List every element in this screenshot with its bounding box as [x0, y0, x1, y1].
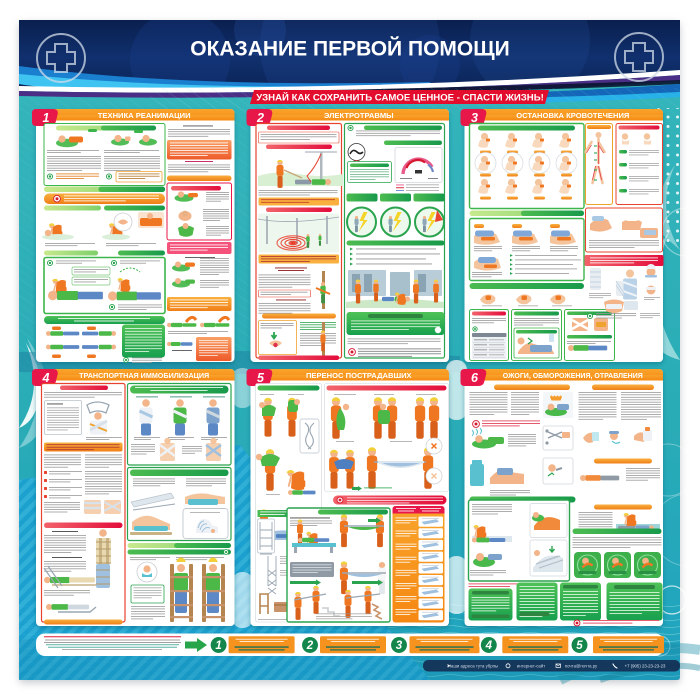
svg-text:ТЕХНИКА РЕАНИМАЦИИ: ТЕХНИКА РЕАНИМАЦИИ	[98, 111, 191, 120]
svg-text:ОЖОГИ, ОБМОРОЖЕНИЯ, ОТРАВЛЕНИЯ: ОЖОГИ, ОБМОРОЖЕНИЯ, ОТРАВЛЕНИЯ	[503, 373, 643, 380]
svg-text:6: 6	[471, 371, 479, 385]
svg-text:+7 (905) 23-23-23-23: +7 (905) 23-23-23-23	[625, 664, 666, 669]
svg-text:4: 4	[485, 640, 493, 652]
svg-text:2: 2	[306, 640, 314, 652]
svg-text:интернет-сайт: интернет-сайт	[517, 664, 545, 669]
svg-text:5: 5	[257, 371, 265, 385]
svg-text:1: 1	[215, 640, 221, 652]
svg-text:Наши адреса тута убрпы: Наши адреса тута убрпы	[448, 664, 498, 669]
svg-text:1: 1	[43, 111, 50, 125]
svg-text:ТРАНСПОРТНАЯ ИММОБИЛИЗАЦИЯ: ТРАНСПОРТНАЯ ИММОБИЛИЗАЦИЯ	[79, 371, 209, 380]
svg-text:ОСТАНОВКА КРОВОТЕЧЕНИЯ: ОСТАНОВКА КРОВОТЕЧЕНИЯ	[516, 111, 629, 120]
svg-text:ЭЛЕКТРОТРАВМЫ: ЭЛЕКТРОТРАВМЫ	[324, 111, 394, 120]
svg-text:ОКАЗАНИЕ ПЕРВОЙ ПОМОЩИ: ОКАЗАНИЕ ПЕРВОЙ ПОМОЩИ	[190, 37, 510, 61]
svg-text:почта@почта.ру: почта@почта.ру	[565, 664, 598, 669]
svg-text:5: 5	[576, 640, 583, 652]
svg-text:ПЕРЕНОС ПОСТРАДАВШИХ: ПЕРЕНОС ПОСТРАДАВШИХ	[306, 371, 412, 380]
svg-text:3: 3	[396, 640, 403, 652]
svg-text:УЗНАЙ КАК СОХРАНИТЬ САМОЕ ЦЕНН: УЗНАЙ КАК СОХРАНИТЬ САМОЕ ЦЕННОЕ - СПАСТ…	[256, 92, 544, 104]
